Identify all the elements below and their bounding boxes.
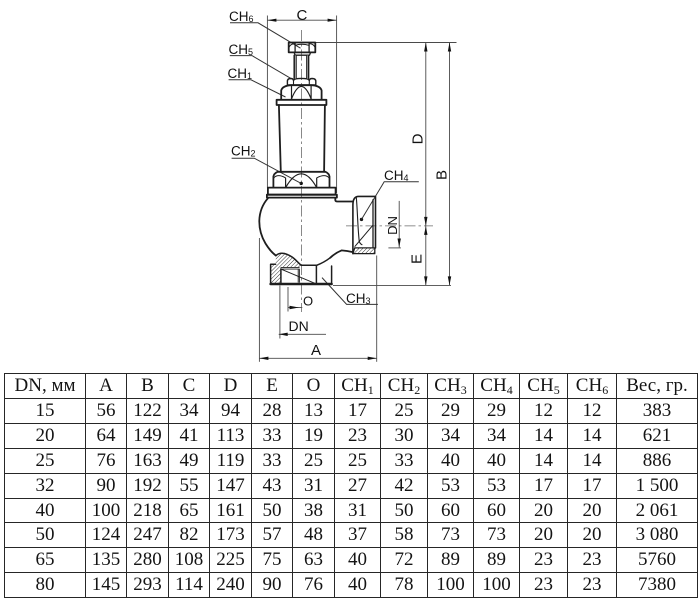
svg-text:E: E xyxy=(409,254,426,264)
svg-text:CH5: CH5 xyxy=(229,42,254,57)
svg-text:DN: DN xyxy=(385,216,400,235)
svg-text:A: A xyxy=(311,342,321,359)
svg-text:DN: DN xyxy=(289,318,309,334)
svg-text:CH2: CH2 xyxy=(231,144,256,159)
svg-text:O: O xyxy=(303,294,313,309)
svg-text:D: D xyxy=(410,133,427,144)
svg-text:CH6: CH6 xyxy=(229,9,254,24)
svg-text:B: B xyxy=(434,170,451,180)
svg-text:CH1: CH1 xyxy=(228,66,253,81)
svg-text:CH3: CH3 xyxy=(346,291,371,306)
svg-text:CH4: CH4 xyxy=(384,168,409,183)
svg-text:C: C xyxy=(297,7,308,24)
